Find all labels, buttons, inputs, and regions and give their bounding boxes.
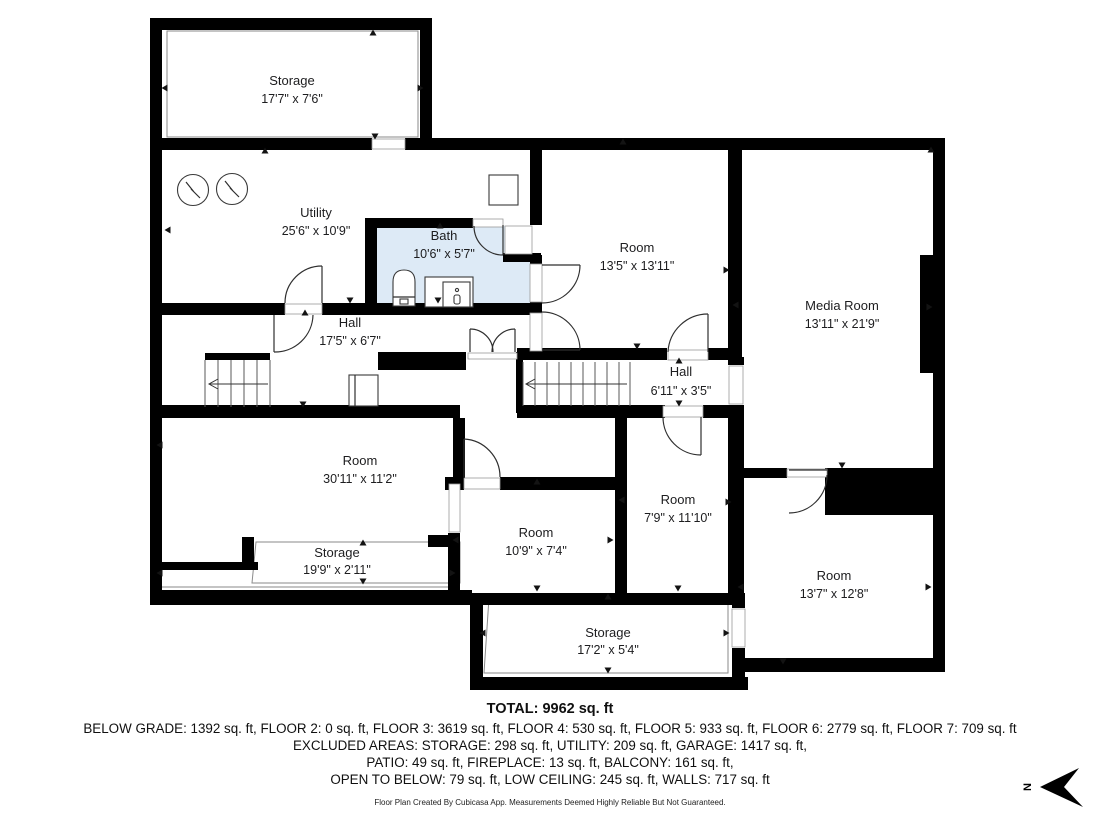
svg-text:Storage: Storage: [585, 625, 631, 640]
svg-text:Room: Room: [519, 525, 554, 540]
stairs-left-icon: [205, 360, 270, 407]
toilet-icon: [393, 270, 415, 306]
svg-text:Room: Room: [661, 492, 696, 507]
room-label-storage-bottom: Storage 17'2" x 5'4": [577, 625, 639, 657]
room-label-hall-left: Hall 17'5" x 6'7": [319, 315, 381, 348]
disclaimer: Floor Plan Created By Cubicasa App. Meas…: [0, 798, 1100, 807]
room-label-room-bottom-middle: Room 10'9" x 7'4": [505, 525, 567, 558]
excluded-areas-3: OPEN TO BELOW: 79 sq. ft, LOW CEILING: 2…: [0, 772, 1100, 787]
svg-text:19'9" x 2'11": 19'9" x 2'11": [303, 563, 371, 577]
svg-text:Media Room: Media Room: [805, 298, 879, 313]
svg-text:10'9" x 7'4": 10'9" x 7'4": [505, 544, 567, 558]
svg-text:10'6" x 5'7": 10'6" x 5'7": [413, 247, 475, 261]
room-label-room-bottom-center: Room 7'9" x 11'10": [644, 492, 712, 525]
room-label-storage-strip: Storage 19'9" x 2'11": [303, 545, 371, 577]
excluded-areas-2: PATIO: 49 sq. ft, FIREPLACE: 13 sq. ft, …: [0, 755, 1100, 770]
room-label-utility: Utility 25'6" x 10'9": [282, 205, 351, 238]
svg-text:25'6" x 10'9": 25'6" x 10'9": [282, 224, 351, 238]
svg-text:Storage: Storage: [269, 73, 315, 88]
stairs-center-icon: [523, 362, 630, 406]
svg-text:17'2" x 5'4": 17'2" x 5'4": [577, 643, 639, 657]
svg-text:Room: Room: [817, 568, 852, 583]
cabinet-icon: [349, 375, 378, 406]
water-heater-icon: [217, 174, 248, 205]
room-label-room-left: Room 30'11" x 11'2": [323, 453, 397, 486]
sink-vanity-icon: [425, 277, 473, 307]
area-summary: TOTAL: 9962 sq. ft BELOW GRADE: 1392 sq.…: [0, 701, 1100, 815]
room-label-room-top-middle: Room 13'5" x 13'11": [600, 240, 675, 273]
room-label-room-bottom-right: Room 13'7" x 12'8": [800, 568, 869, 601]
svg-text:13'7" x 12'8": 13'7" x 12'8": [800, 587, 869, 601]
svg-text:Room: Room: [620, 240, 655, 255]
svg-text:6'11" x 3'5": 6'11" x 3'5": [651, 384, 712, 398]
svg-text:13'5" x 13'11": 13'5" x 13'11": [600, 259, 675, 273]
svg-text:Storage: Storage: [314, 545, 360, 560]
svg-text:7'9" x 11'10": 7'9" x 11'10": [644, 511, 712, 525]
svg-text:Utility: Utility: [300, 205, 332, 220]
svg-text:17'5" x 6'7": 17'5" x 6'7": [319, 334, 381, 348]
svg-text:13'11" x 21'9": 13'11" x 21'9": [805, 317, 880, 331]
appliance-icon: [489, 175, 518, 205]
floor-plan-page: Storage 17'7" x 7'6" Utility 25'6" x 10'…: [0, 0, 1100, 825]
room-label-hall-center: Hall 6'11" x 3'5": [651, 364, 712, 398]
room-label-storage-top: Storage 17'7" x 7'6": [261, 73, 323, 106]
svg-text:Hall: Hall: [339, 315, 362, 330]
room-label-media-room: Media Room 13'11" x 21'9": [805, 298, 880, 331]
svg-text:Hall: Hall: [670, 364, 693, 379]
svg-text:17'7" x 7'6": 17'7" x 7'6": [261, 92, 323, 106]
svg-text:Bath: Bath: [431, 228, 458, 243]
total-area: TOTAL: 9962 sq. ft: [0, 701, 1100, 717]
excluded-areas-1: EXCLUDED AREAS: STORAGE: 298 sq. ft, UTI…: [0, 738, 1100, 753]
svg-text:Room: Room: [343, 453, 378, 468]
floor-breakdown: BELOW GRADE: 1392 sq. ft, FLOOR 2: 0 sq.…: [0, 721, 1100, 736]
svg-text:30'11" x 11'2": 30'11" x 11'2": [323, 472, 397, 486]
water-heater-icon: [178, 175, 209, 206]
